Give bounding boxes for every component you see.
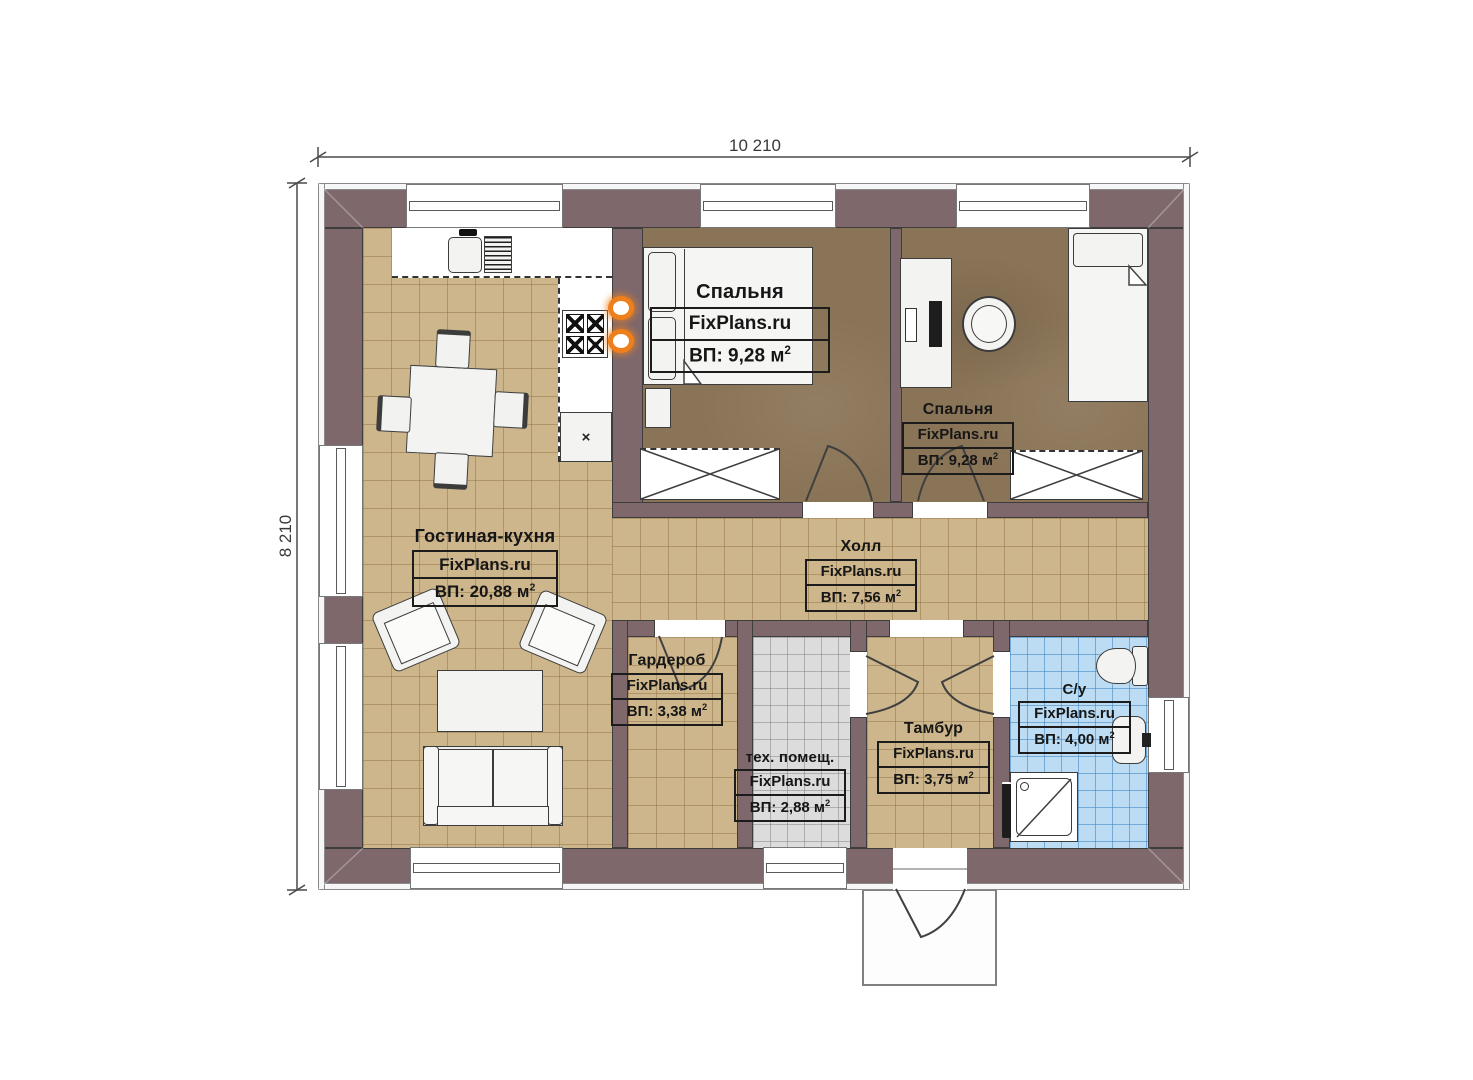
desk-chair-seat [971, 305, 1007, 343]
partition-tambour-bath-upper [993, 620, 1010, 652]
window-left-lower [319, 643, 363, 790]
porch [862, 889, 997, 986]
keyboard [905, 308, 917, 342]
window-top-bedroom2 [956, 184, 1090, 228]
window-right-bathroom [1148, 697, 1189, 773]
burner-icon [566, 314, 584, 333]
heater-icon-1 [608, 296, 634, 320]
partition-hall-left [612, 502, 803, 518]
partition-kitchen-bedroom1 [612, 228, 643, 518]
brand-watermark: FixPlans.ru [412, 550, 558, 579]
dimension-width: 10 210 [715, 136, 795, 156]
partition-tech-tambour-upper [850, 620, 867, 652]
room-label-bedroom1: Спальня FixPlans.ru ВП: 9,28 м2 [650, 281, 830, 373]
partition-hall-right [987, 502, 1148, 518]
room-name: тех. помещ. [734, 749, 846, 766]
closet-bedroom1 [640, 448, 780, 500]
burner-icon [587, 336, 605, 355]
room-label-bathroom: С/у FixPlans.ru ВП: 4,00 м2 [1018, 681, 1131, 754]
toilet-bowl [1096, 648, 1136, 684]
sq-sup: 2 [993, 451, 998, 461]
dining-table [406, 365, 497, 457]
doorway-bedroom1 [803, 502, 873, 518]
opening-hall-tambour [890, 620, 963, 637]
dining-chair-top [435, 329, 471, 369]
fridge-box: × [560, 412, 612, 462]
room-name: Спальня [650, 281, 830, 304]
brand-watermark: FixPlans.ru [734, 769, 846, 796]
brand-watermark: FixPlans.ru [611, 673, 723, 700]
window-bottom-living [410, 847, 563, 889]
washbasin-tap [1142, 733, 1151, 747]
sq-sup: 2 [784, 344, 791, 357]
sq-sup: 2 [969, 770, 974, 780]
partition-tech-tambour-lower [850, 717, 867, 848]
room-area: ВП: 9,28 м [918, 452, 993, 469]
room-area: ВП: 20,88 м [435, 582, 530, 601]
room-name: С/у [1018, 681, 1131, 698]
heater-icon-2 [608, 329, 634, 353]
sofa-armrest-right [547, 746, 563, 825]
pillow [1073, 233, 1143, 267]
dish-rack [484, 236, 512, 273]
sq-sup: 2 [529, 582, 535, 594]
room-label-tech: тех. помещ. FixPlans.ru ВП: 2,88 м2 [734, 749, 846, 822]
window-top-bedroom1 [700, 184, 836, 228]
room-label-tambour: Тамбур FixPlans.ru ВП: 3,75 м2 [877, 720, 990, 794]
dining-chair-right [493, 391, 529, 429]
brand-watermark: FixPlans.ru [805, 559, 917, 586]
room-label-bedroom2: Спальня FixPlans.ru ВП: 9,28 м2 [902, 401, 1014, 475]
room-name: Спальня [902, 401, 1014, 419]
partition-hall-stub [873, 502, 913, 518]
dining-chair-left [376, 395, 412, 433]
stove [562, 310, 608, 358]
room-area: ВП: 2,88 м [750, 799, 825, 816]
sofa [423, 746, 563, 826]
room-area: ВП: 7,56 м [821, 589, 896, 606]
window-left-upper [319, 445, 363, 597]
room-name: Гардероб [611, 652, 723, 670]
sq-sup: 2 [702, 702, 707, 712]
brand-watermark: FixPlans.ru [1018, 701, 1131, 728]
room-area: ВП: 9,28 м [689, 345, 784, 366]
doorway-wardrobe [655, 620, 725, 637]
burner-icon [587, 314, 605, 333]
dining-chair-bottom [433, 452, 469, 490]
facade-line-right [1183, 183, 1190, 890]
kitchen-sink [448, 237, 482, 273]
brand-watermark: FixPlans.ru [650, 307, 830, 341]
burner-icon [566, 336, 584, 355]
room-label-hall: Холл FixPlans.ru ВП: 7,56 м2 [805, 538, 917, 612]
monitor-icon [929, 301, 942, 347]
closet-bedroom2 [1010, 450, 1143, 500]
floor-plan-canvas: × Спальня FixPlans.ru [0, 0, 1473, 1080]
room-name: Холл [805, 538, 917, 556]
room-name: Гостиная-кухня [412, 526, 558, 547]
window-top-kitchen [406, 184, 563, 228]
doorway-bathroom [993, 652, 1010, 717]
partition-block-top-3 [963, 620, 1148, 637]
sq-sup: 2 [1110, 730, 1115, 740]
doorway-bedroom2 [913, 502, 987, 518]
brand-watermark: FixPlans.ru [902, 422, 1014, 449]
faucet-icon [459, 229, 477, 236]
nightstand [645, 388, 671, 428]
brand-watermark: FixPlans.ru [877, 741, 990, 768]
room-area: ВП: 3,75 м [893, 771, 968, 788]
room-label-living: Гостиная-кухня FixPlans.ru ВП: 20,88 м2 [412, 526, 558, 607]
sq-sup: 2 [825, 798, 830, 808]
shower-mixer [1002, 782, 1011, 838]
shower-drain [1020, 782, 1029, 791]
doorway-tech [850, 652, 867, 717]
sofa-back [437, 806, 549, 826]
dimension-height: 8 210 [276, 503, 296, 569]
coffee-table [437, 670, 543, 732]
room-name: Тамбур [877, 720, 990, 738]
entrance-opening [893, 848, 967, 890]
window-bottom-tech [763, 847, 847, 889]
room-area: ВП: 3,38 м [627, 703, 702, 720]
sq-sup: 2 [896, 588, 901, 598]
room-label-wardrobe: Гардероб FixPlans.ru ВП: 3,38 м2 [611, 652, 723, 726]
sofa-cushion [493, 749, 548, 807]
sofa-cushion [438, 749, 493, 807]
room-area: ВП: 4,00 м [1034, 731, 1109, 748]
